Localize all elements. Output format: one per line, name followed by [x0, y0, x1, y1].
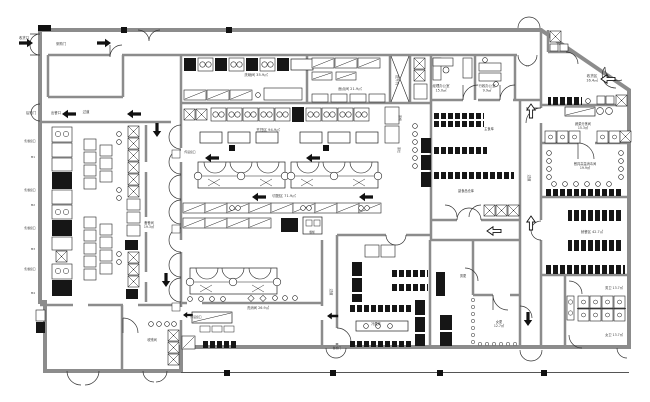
floor-plan-canvas: 收货口采购门后勤门出餐口过道售餐窗口M1售餐窗口M2售餐窗口M3售餐窗口M4洗碗…: [0, 0, 650, 402]
room-label: 主食库: [484, 126, 494, 131]
room-label: 售餐窗口: [24, 188, 35, 192]
column-marker: [323, 145, 329, 151]
column-marker: [330, 370, 336, 376]
room-label: 女卫 13.7㎡: [605, 332, 623, 337]
room-label: 采购门: [56, 41, 67, 46]
column-marker: [541, 370, 547, 376]
room-label: 蒸灶: [397, 147, 402, 153]
room-label: 男更: [460, 273, 467, 278]
room-label: 售餐窗口: [24, 267, 35, 271]
room-label: 出餐口: [51, 110, 61, 115]
room-label: 烹饪区 94.9㎡: [256, 127, 280, 132]
room-label: 洗碗间 35.9㎡: [244, 72, 268, 77]
cookline-north: [184, 107, 369, 122]
serving-line-west: [52, 127, 72, 296]
room-label: 后勤门: [26, 110, 37, 115]
room-label: M4: [31, 291, 35, 295]
room-label: 副食品仓库: [458, 188, 475, 193]
column-marker: [437, 370, 443, 376]
room-label: 传递窗口: [184, 150, 195, 154]
column-marker: [224, 370, 230, 376]
room-label: M3: [31, 247, 35, 251]
room-label: 冷藏库: [371, 321, 381, 326]
room-label: 餐梯: [309, 230, 315, 234]
room-label: 过道: [527, 175, 532, 182]
room-label: 面点间 21.9㎡: [338, 86, 362, 91]
room-label: 过道: [83, 109, 90, 114]
column-marker: [226, 27, 232, 33]
room-label: M2: [31, 203, 35, 207]
floor-plan-drawing: 收货口采购门后勤门出餐口过道售餐窗口M1售餐窗口M2售餐窗口M3售餐窗口M4洗碗…: [0, 0, 650, 402]
room-label: 传递窗口: [190, 315, 201, 319]
room-label: 就餐区 42.7㎡: [581, 229, 604, 234]
room-label: 收货口: [19, 35, 29, 40]
column-marker: [229, 145, 235, 151]
room-label: 售餐窗口: [24, 139, 35, 143]
column-marker: [121, 27, 127, 33]
room-label: 提升机: [395, 75, 400, 85]
room-label: 蒸柜: [398, 115, 403, 121]
room-label: M1: [31, 155, 35, 159]
room-label: 收残间: [147, 337, 157, 342]
room-label: 售餐窗口: [24, 226, 35, 230]
room-label: 男卫 13.7㎡: [605, 285, 623, 290]
room-label: 洗消间 26.9㎡: [247, 305, 270, 310]
room-label: 备餐间19.3㎡: [144, 220, 155, 229]
room-label: 过道: [329, 289, 334, 296]
room-label: 收货区16.4㎡: [586, 73, 598, 83]
room-label: 切配区 71.9㎡: [272, 193, 296, 198]
room-label: 餐梯门: [333, 346, 342, 350]
